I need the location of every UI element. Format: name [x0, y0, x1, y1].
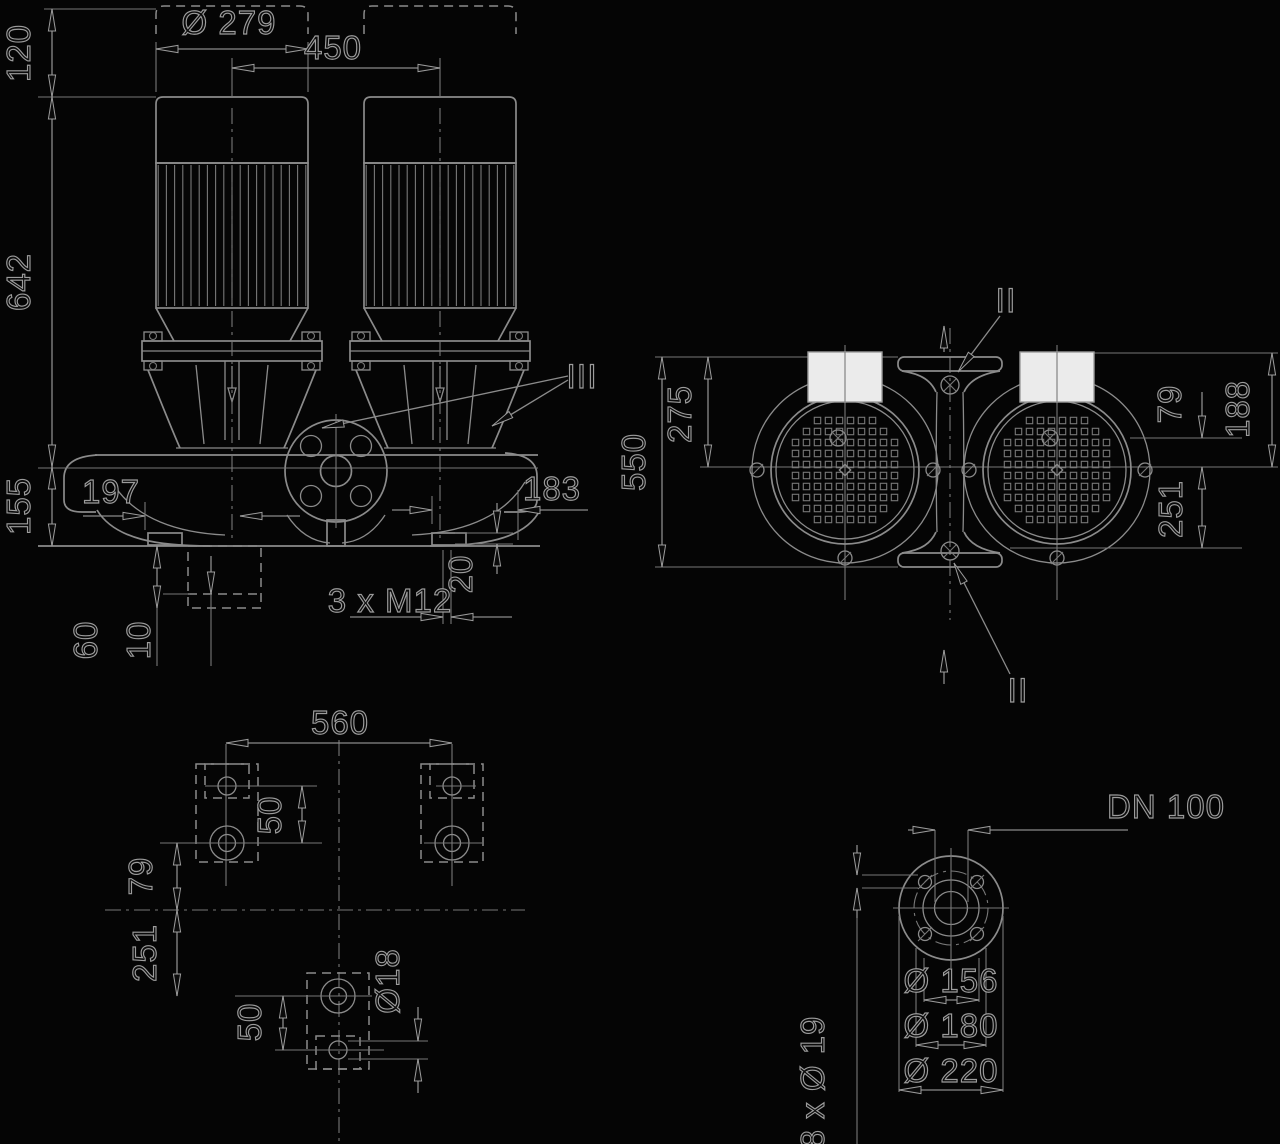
- terminal-box-right: [1020, 352, 1094, 402]
- dim-base-height: 155: [0, 477, 37, 535]
- front-view: Ø 279 450 120 642 155 197 183 20: [0, 4, 598, 666]
- dim-grout-thickness: 10: [120, 621, 157, 660]
- dim-left-port-offset: 197: [82, 473, 140, 510]
- dim-right-port-offset: 183: [523, 470, 581, 507]
- dim-tapped-holes: 3 x M12: [328, 582, 452, 619]
- dim-face-to-axis: 188: [1219, 380, 1256, 438]
- dim-motor-diameter: Ø 279: [182, 4, 277, 41]
- dim-front-to-center: 79: [122, 857, 159, 896]
- top-view: 550 275 188 79 251 II II: [615, 282, 1278, 710]
- dim-port-to-port: 550: [615, 433, 652, 491]
- front-view-dimensions: Ø 279 450 120 642 155 197 183 20: [0, 4, 598, 666]
- foundation-plan-dimensions: 560 50 79 251 50 Ø18: [122, 704, 452, 1093]
- dim-axis-to-rear: 251: [1152, 480, 1189, 538]
- flange-dimensions: DN 100 Ø 156 Ø 180 Ø 220 8 x Ø 19: [794, 788, 1225, 1144]
- dim-bolt-holes: 8 x Ø 19: [794, 1016, 831, 1144]
- dim-axis-offset: 79: [1151, 385, 1188, 424]
- top-view-dimensions: 550 275 188 79 251 II II: [615, 282, 1278, 710]
- dim-front-hole-offset: 50: [251, 796, 288, 835]
- section-label-ii-bottom: II: [1008, 672, 1029, 710]
- dim-hole-diameter: Ø18: [369, 948, 406, 1013]
- dim-bolt-spacing: 560: [311, 704, 369, 741]
- removal-space-right: [364, 6, 516, 34]
- foot-pad-front-left: [160, 764, 322, 862]
- dim-motor-spacing: 450: [304, 29, 362, 66]
- section-label-ii-top: II: [996, 282, 1017, 320]
- dim-rear-hole-offset: 50: [231, 1003, 268, 1042]
- flange-detail: DN 100 Ø 156 Ø 180 Ø 220 8 x Ø 19: [794, 788, 1225, 1144]
- section-label-iii: III: [566, 358, 597, 396]
- dim-port-face-to-axis: 275: [661, 385, 698, 443]
- dim-height-above: 120: [0, 24, 37, 82]
- dim-foundation-depth: 60: [67, 621, 104, 660]
- dim-center-to-rear: 251: [126, 924, 163, 982]
- dim-outer-diameter: Ø 220: [904, 1052, 999, 1089]
- pump-dimensional-drawing: Ø 279 450 120 642 155 197 183 20: [0, 0, 1280, 1144]
- dim-raised-face: Ø 156: [904, 962, 999, 999]
- technical-drawing-page: Ø 279 450 120 642 155 197 183 20: [0, 0, 1280, 1144]
- dim-motor-height: 642: [0, 253, 37, 311]
- foundation-pad: [188, 546, 261, 608]
- foundation-plan: 560 50 79 251 50 Ø18: [105, 704, 525, 1142]
- terminal-box-left: [808, 352, 882, 402]
- dim-bolt-circle: Ø 180: [904, 1007, 999, 1044]
- dim-nominal-diameter: DN 100: [1107, 788, 1225, 825]
